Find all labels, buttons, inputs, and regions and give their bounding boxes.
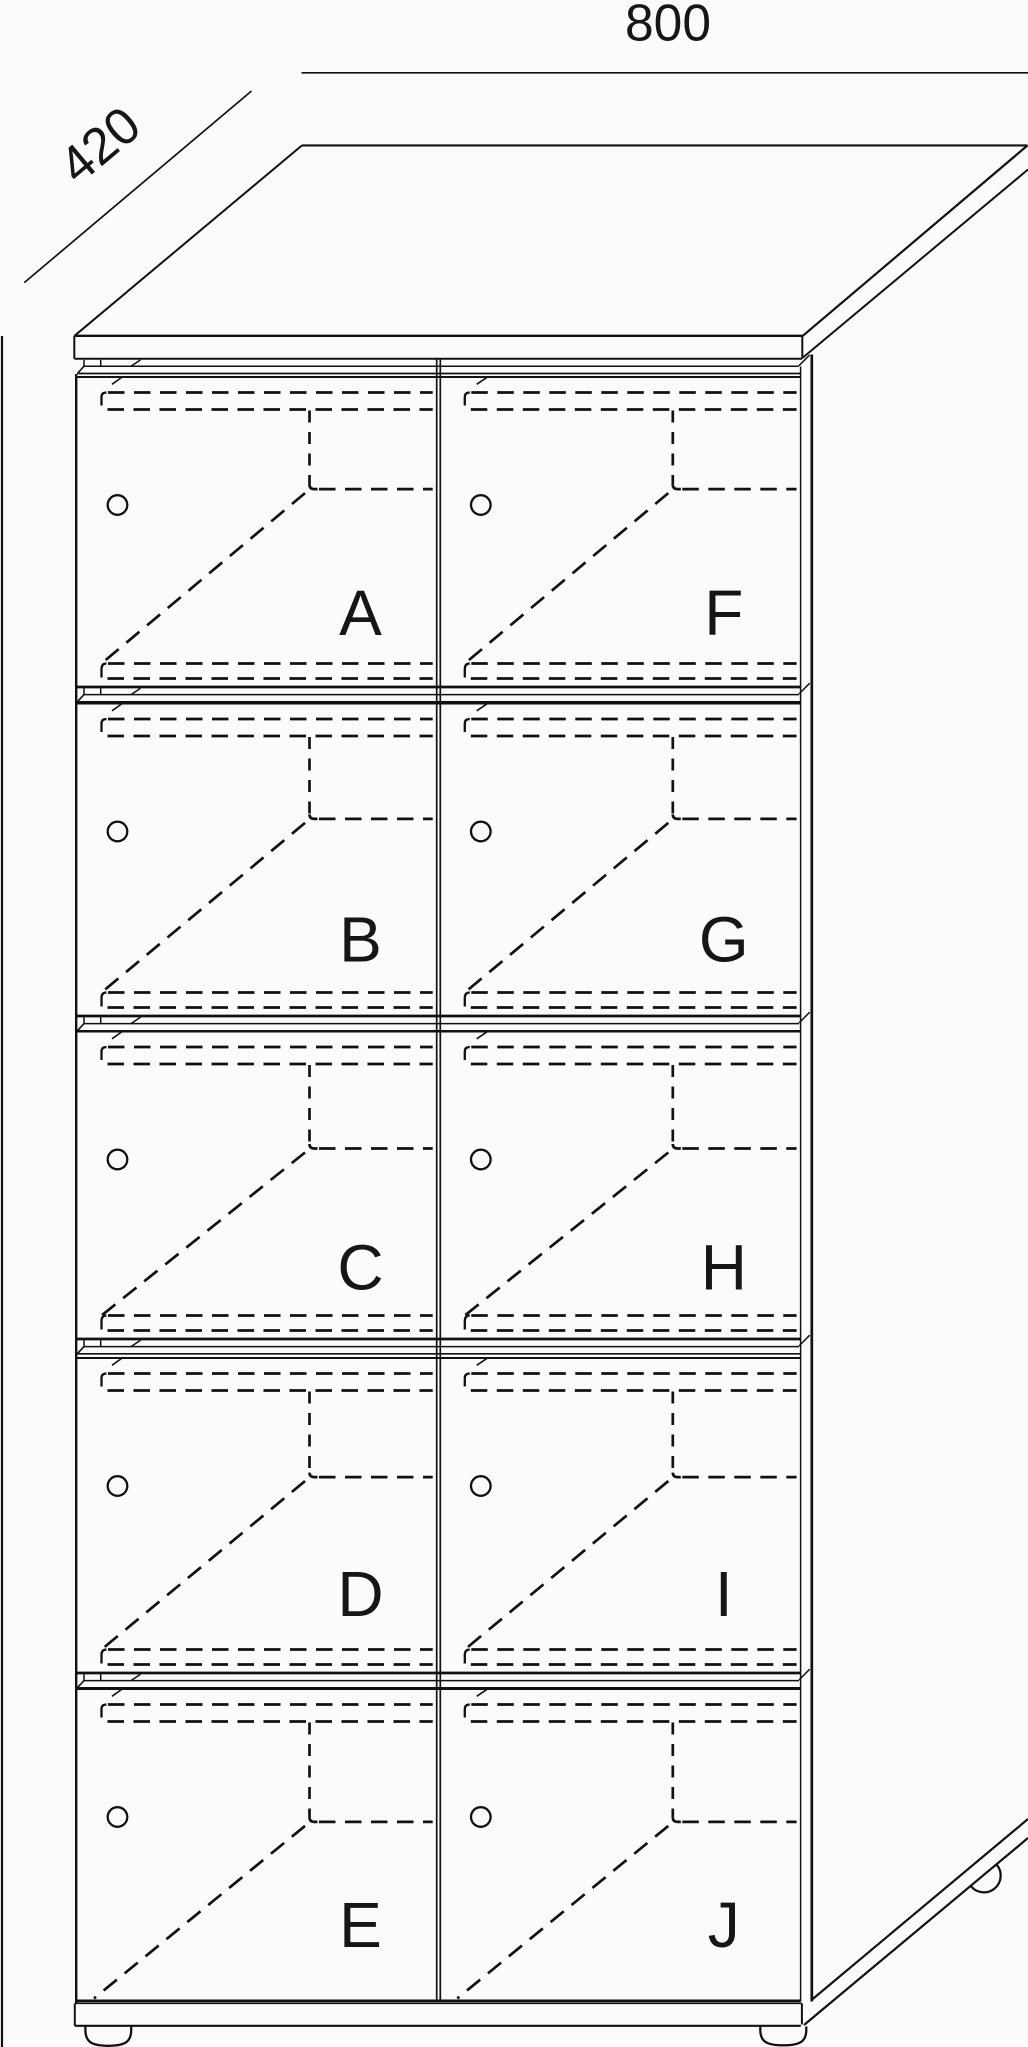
svg-text:C: C	[337, 1232, 383, 1304]
svg-text:I: I	[715, 1558, 733, 1630]
svg-text:F: F	[704, 577, 743, 649]
svg-text:E: E	[339, 1889, 382, 1961]
svg-text:800: 800	[625, 0, 711, 52]
svg-text:A: A	[339, 577, 382, 649]
svg-text:J: J	[708, 1889, 740, 1961]
svg-text:D: D	[337, 1558, 383, 1630]
svg-text:B: B	[339, 904, 382, 976]
svg-text:H: H	[701, 1232, 747, 1304]
svg-text:G: G	[699, 904, 749, 976]
